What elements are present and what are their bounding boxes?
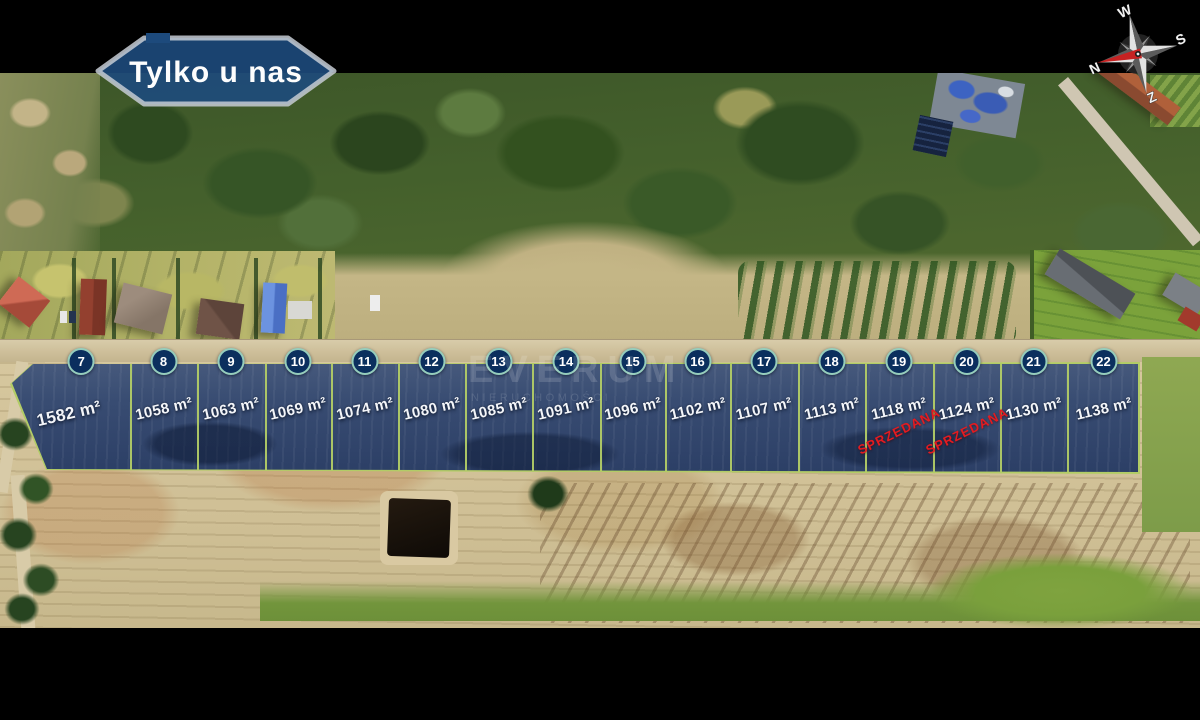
plot-area-label: 1058 m²	[133, 394, 193, 424]
tylko-u-nas-sign: Tylko u nas	[84, 28, 346, 114]
plot-number: 17	[757, 354, 771, 369]
hedge	[72, 258, 76, 344]
plot-number-badge: 16	[684, 348, 711, 375]
plot-number-badge: 12	[418, 348, 445, 375]
plot-16: 16 1102 m²	[665, 362, 730, 474]
plot-area-label: 1074 m²	[334, 394, 394, 424]
plot-area-label: 1107 m²	[734, 394, 794, 423]
compass-rose: N S W Z	[1080, 0, 1196, 112]
plot-number-badge: 15	[619, 348, 646, 375]
plot-number-badge: 11	[351, 348, 378, 375]
plot-number: 16	[690, 354, 704, 369]
plot-10: 10 1069 m²	[265, 362, 331, 474]
plot-number: 19	[892, 354, 906, 369]
plot-number: 18	[824, 354, 838, 369]
plot-number-badge: 10	[285, 348, 312, 375]
car	[60, 311, 67, 323]
compass-label-south: S	[1173, 30, 1188, 48]
pond	[380, 491, 458, 565]
plot-9: 9 1063 m²	[197, 362, 265, 474]
plot-area-label: 1130 m²	[1004, 394, 1064, 423]
hedge	[254, 258, 258, 344]
plot-number: 8	[160, 354, 167, 369]
compass-star	[1089, 7, 1186, 102]
car	[69, 311, 76, 323]
plot-number: 7	[78, 354, 85, 369]
plot-number-badge: 7	[68, 348, 95, 375]
tree	[0, 589, 44, 628]
plot-area-label: 1582 m²	[35, 396, 103, 430]
plot-number: 10	[291, 354, 305, 369]
plot-number-badge: 14	[553, 348, 580, 375]
plot-17: 17 1107 m²	[730, 362, 798, 474]
plot-number-badge: 19	[886, 348, 913, 375]
plot-number: 13	[491, 354, 505, 369]
plot-8: 8 1058 m²	[130, 362, 197, 474]
plot-number-badge: 8	[150, 348, 177, 375]
plot-19: 19 1118 m² SPRZEDANA	[865, 362, 933, 474]
plot-number-badge: 13	[485, 348, 512, 375]
plot-number: 14	[559, 354, 573, 369]
plot-12: 12 1080 m²	[398, 362, 465, 474]
plot-area-label: 1063 m²	[201, 394, 261, 424]
plot-area-label: 1113 m²	[802, 394, 861, 423]
plot-22: 22 1138 m²	[1067, 362, 1140, 474]
aerial-photo	[0, 73, 1200, 628]
compass-label-west: Z	[1144, 88, 1159, 106]
plot-area-label: 1091 m²	[536, 394, 596, 424]
grass	[1142, 357, 1200, 532]
plot-number-badge: 18	[818, 348, 845, 375]
plot-area-label: 1085 m²	[468, 394, 528, 424]
compass-label-north: N	[1087, 59, 1103, 78]
plot-number-badge: 21	[1020, 348, 1047, 375]
plot-area-label: 1138 m²	[1074, 394, 1134, 423]
plot-number: 9	[227, 354, 234, 369]
plot-number: 21	[1026, 354, 1040, 369]
promo-image: 7 1582 m² 8 1058 m² 9 1063 m² 10 1069 m²…	[0, 0, 1200, 720]
plot-number-badge: 9	[218, 348, 245, 375]
plot-area-label: 1080 m²	[401, 394, 461, 424]
plot-21: 21 1130 m²	[1000, 362, 1067, 474]
plot-15: 15 1096 m²	[600, 362, 665, 474]
plot-number: 11	[358, 354, 372, 369]
plot-number: 20	[959, 354, 973, 369]
plot-18: 18 1113 m²	[798, 362, 865, 474]
plot-20: 20 1124 m² SPRZEDANA	[933, 362, 1000, 474]
house-annex	[288, 301, 312, 319]
plot-number: 15	[625, 354, 639, 369]
tree	[522, 471, 574, 517]
plot-number-badge: 20	[953, 348, 980, 375]
house	[261, 282, 288, 333]
orchard-rows	[738, 261, 1016, 345]
sign-label: Tylko u nas	[129, 56, 303, 89]
hedge	[112, 258, 116, 344]
plot-14: 14 1091 m²	[532, 362, 600, 474]
plot-number-badge: 17	[751, 348, 778, 375]
house	[79, 279, 107, 336]
compass-label-east: W	[1115, 1, 1134, 21]
plot-number-badge: 22	[1090, 348, 1117, 375]
plot-13: 13 1085 m²	[465, 362, 532, 474]
plot-area-label: 1069 m²	[268, 394, 328, 424]
plot-area-label: 1102 m²	[668, 394, 728, 423]
plot-number: 22	[1096, 354, 1110, 369]
letterbox-bottom	[0, 628, 1200, 720]
sign-border-gap	[146, 33, 170, 43]
green-field	[920, 551, 1200, 628]
hedge	[318, 258, 322, 344]
house	[196, 298, 245, 340]
plot-area-label: 1096 m²	[602, 394, 662, 424]
plot-11: 11 1074 m²	[331, 362, 398, 474]
tree	[14, 469, 58, 509]
plot-7: 7 1582 m²	[8, 362, 130, 474]
car	[370, 295, 380, 311]
plot-number: 12	[424, 354, 438, 369]
plots-labels: 7 1582 m² 8 1058 m² 9 1063 m² 10 1069 m²…	[8, 362, 1140, 474]
hedge	[176, 258, 180, 344]
